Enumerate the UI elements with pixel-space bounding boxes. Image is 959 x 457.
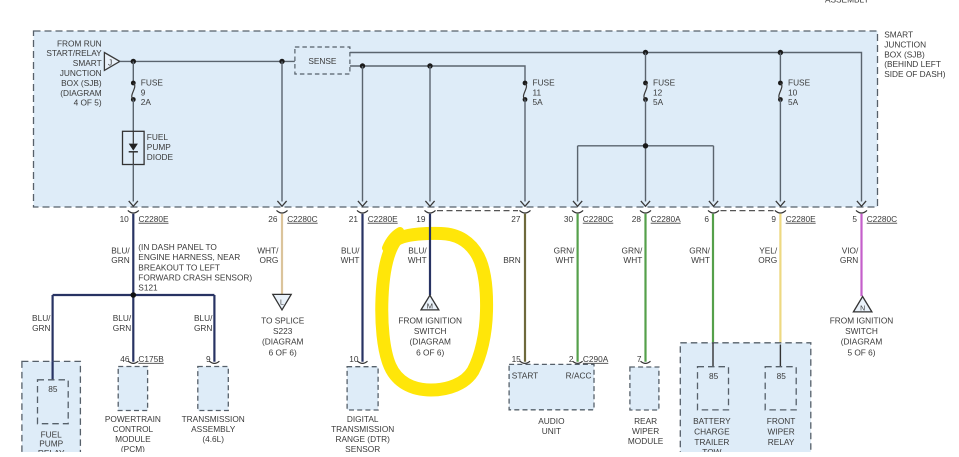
svg-text:GRN: GRN	[32, 323, 50, 333]
svg-text:C2280C: C2280C	[867, 214, 897, 224]
svg-text:TRANSMISSION: TRANSMISSION	[331, 424, 394, 434]
svg-text:6: 6	[704, 214, 709, 224]
svg-text:SIDE OF DASH): SIDE OF DASH)	[884, 69, 946, 79]
svg-text:AUDIO: AUDIO	[538, 416, 565, 426]
svg-text:WIPER: WIPER	[767, 426, 794, 436]
svg-text:ASSEMBLY: ASSEMBLY	[825, 0, 870, 5]
svg-text:FUSE: FUSE	[788, 77, 811, 87]
svg-text:FUSE: FUSE	[533, 77, 556, 87]
svg-text:SENSOR: SENSOR	[345, 444, 380, 452]
svg-text:MODULE: MODULE	[628, 436, 664, 446]
svg-text:10: 10	[120, 214, 130, 224]
svg-text:2: 2	[569, 354, 574, 364]
svg-text:GRN: GRN	[111, 255, 129, 265]
svg-text:L: L	[280, 300, 284, 307]
svg-text:SWITCH: SWITCH	[845, 326, 878, 336]
svg-text:2A: 2A	[141, 97, 152, 107]
svg-text:11: 11	[533, 87, 542, 97]
svg-text:(DIAGRAM: (DIAGRAM	[841, 337, 883, 347]
svg-text:M: M	[427, 301, 433, 310]
svg-text:YEL/: YEL/	[759, 245, 778, 255]
svg-text:TOW: TOW	[702, 447, 721, 452]
svg-text:28: 28	[632, 214, 642, 224]
svg-text:BLU/: BLU/	[113, 313, 132, 323]
svg-text:(DIAGRAM: (DIAGRAM	[262, 337, 304, 347]
svg-text:5 OF 6): 5 OF 6)	[847, 347, 875, 357]
svg-text:S121: S121	[138, 283, 158, 293]
svg-text:J: J	[108, 58, 112, 68]
svg-text:RELAY: RELAY	[38, 448, 65, 452]
svg-text:5: 5	[852, 214, 857, 224]
svg-text:9: 9	[771, 214, 776, 224]
svg-text:JUNCTION: JUNCTION	[60, 68, 102, 78]
svg-text:BLU/: BLU/	[111, 245, 130, 255]
svg-text:JUNCTION: JUNCTION	[884, 39, 926, 49]
svg-text:START/RELAY: START/RELAY	[46, 48, 102, 58]
svg-text:C2280C: C2280C	[583, 214, 613, 224]
svg-text:10: 10	[349, 354, 359, 364]
svg-text:WHT: WHT	[623, 255, 642, 265]
svg-text:WHT: WHT	[341, 255, 360, 265]
svg-text:15: 15	[512, 354, 522, 364]
svg-text:WHT/: WHT/	[257, 245, 279, 255]
svg-text:GRN: GRN	[840, 255, 858, 265]
svg-text:C290A: C290A	[583, 354, 609, 364]
svg-text:9: 9	[141, 87, 146, 97]
svg-text:(DIAGRAM: (DIAGRAM	[60, 88, 102, 98]
svg-text:TRAILER: TRAILER	[694, 437, 729, 447]
svg-text:WHT: WHT	[691, 255, 710, 265]
svg-text:C2280E: C2280E	[139, 214, 169, 224]
svg-text:FUSE: FUSE	[141, 77, 164, 87]
svg-text:R/ACC: R/ACC	[566, 371, 592, 381]
svg-text:REAR: REAR	[634, 416, 657, 426]
svg-text:WIPER: WIPER	[632, 426, 659, 436]
svg-text:21: 21	[349, 214, 359, 224]
svg-text:PUMP: PUMP	[147, 142, 171, 152]
svg-text:BLU/: BLU/	[32, 313, 51, 323]
svg-text:GRN/: GRN/	[622, 245, 643, 255]
svg-text:CHARGE: CHARGE	[694, 426, 730, 436]
svg-text:BREAKOUT TO LEFT: BREAKOUT TO LEFT	[138, 262, 220, 272]
svg-text:SWITCH: SWITCH	[414, 326, 447, 336]
svg-text:5A: 5A	[653, 97, 664, 107]
svg-text:GRN: GRN	[194, 323, 212, 333]
svg-text:C2280C: C2280C	[287, 214, 317, 224]
svg-text:85: 85	[709, 371, 719, 381]
svg-text:MODULE: MODULE	[115, 434, 151, 444]
svg-text:FROM IGNITION: FROM IGNITION	[398, 315, 462, 325]
svg-text:BLU/: BLU/	[408, 245, 427, 255]
svg-text:N: N	[860, 305, 865, 312]
svg-text:6 OF 6): 6 OF 6)	[269, 347, 297, 357]
svg-text:WHT: WHT	[408, 255, 427, 265]
svg-text:(BEHIND LEFT: (BEHIND LEFT	[884, 59, 941, 69]
svg-text:5A: 5A	[533, 97, 544, 107]
svg-text:GRN: GRN	[113, 323, 131, 333]
svg-text:(DIAGRAM: (DIAGRAM	[409, 337, 451, 347]
svg-text:TRANSMISSION: TRANSMISSION	[182, 414, 245, 424]
svg-text:C2280A: C2280A	[651, 214, 681, 224]
svg-text:START: START	[512, 371, 538, 381]
svg-text:12: 12	[653, 87, 663, 97]
svg-text:VIO/: VIO/	[842, 245, 859, 255]
svg-text:FUSE: FUSE	[653, 77, 676, 87]
svg-text:SMART: SMART	[884, 30, 913, 40]
svg-text:FRONT: FRONT	[767, 416, 796, 426]
svg-text:GRN/: GRN/	[554, 245, 575, 255]
svg-text:DIODE: DIODE	[147, 152, 174, 162]
svg-text:BLU/: BLU/	[194, 313, 213, 323]
svg-text:ENGINE HARNESS, NEAR: ENGINE HARNESS, NEAR	[138, 252, 240, 262]
svg-text:FORWARD CRASH SENSOR): FORWARD CRASH SENSOR)	[138, 273, 252, 283]
svg-text:4 OF 5): 4 OF 5)	[74, 98, 102, 108]
svg-text:WHT: WHT	[555, 255, 574, 265]
svg-text:RANGE (DTR): RANGE (DTR)	[336, 434, 391, 444]
svg-text:5A: 5A	[788, 97, 799, 107]
svg-text:10: 10	[788, 87, 798, 97]
svg-text:27: 27	[511, 214, 521, 224]
svg-text:FROM RUN: FROM RUN	[57, 38, 102, 48]
svg-text:C2280E: C2280E	[786, 214, 816, 224]
svg-text:BOX (SJB): BOX (SJB)	[884, 49, 925, 59]
svg-text:POWERTRAIN: POWERTRAIN	[105, 414, 161, 424]
svg-text:S223: S223	[273, 326, 293, 336]
svg-text:(IN DASH PANEL TO: (IN DASH PANEL TO	[138, 242, 217, 252]
svg-text:ASSEMBLY: ASSEMBLY	[191, 424, 236, 434]
svg-text:BATTERY: BATTERY	[693, 416, 731, 426]
svg-text:19: 19	[416, 214, 426, 224]
svg-text:7: 7	[637, 354, 642, 364]
svg-text:(PCM): (PCM)	[121, 444, 145, 452]
svg-text:26: 26	[268, 214, 278, 224]
svg-text:SENSE: SENSE	[308, 56, 337, 66]
svg-text:ORG: ORG	[758, 255, 777, 265]
svg-text:C175B: C175B	[138, 354, 164, 364]
svg-text:BOX (SJB): BOX (SJB)	[61, 78, 102, 88]
svg-text:SMART: SMART	[73, 58, 102, 68]
svg-text:BLU/: BLU/	[341, 245, 360, 255]
svg-text:85: 85	[48, 384, 58, 394]
svg-text:ORG: ORG	[259, 255, 278, 265]
svg-text:RELAY: RELAY	[768, 437, 795, 447]
svg-text:C2280E: C2280E	[368, 214, 398, 224]
svg-text:FROM IGNITION: FROM IGNITION	[830, 315, 894, 325]
svg-text:(4.6L): (4.6L)	[202, 434, 224, 444]
svg-text:UNIT: UNIT	[542, 426, 561, 436]
svg-text:TO SPLICE: TO SPLICE	[261, 315, 305, 325]
svg-text:6 OF 6): 6 OF 6)	[416, 347, 444, 357]
svg-text:30: 30	[564, 214, 574, 224]
svg-text:46: 46	[120, 354, 130, 364]
svg-text:CONTROL: CONTROL	[113, 424, 154, 434]
svg-text:DIGITAL: DIGITAL	[347, 414, 379, 424]
svg-text:FUEL: FUEL	[147, 132, 169, 142]
svg-text:85: 85	[777, 371, 787, 381]
svg-text:BRN: BRN	[503, 255, 521, 265]
svg-text:9: 9	[206, 354, 211, 364]
svg-text:GRN/: GRN/	[689, 245, 710, 255]
